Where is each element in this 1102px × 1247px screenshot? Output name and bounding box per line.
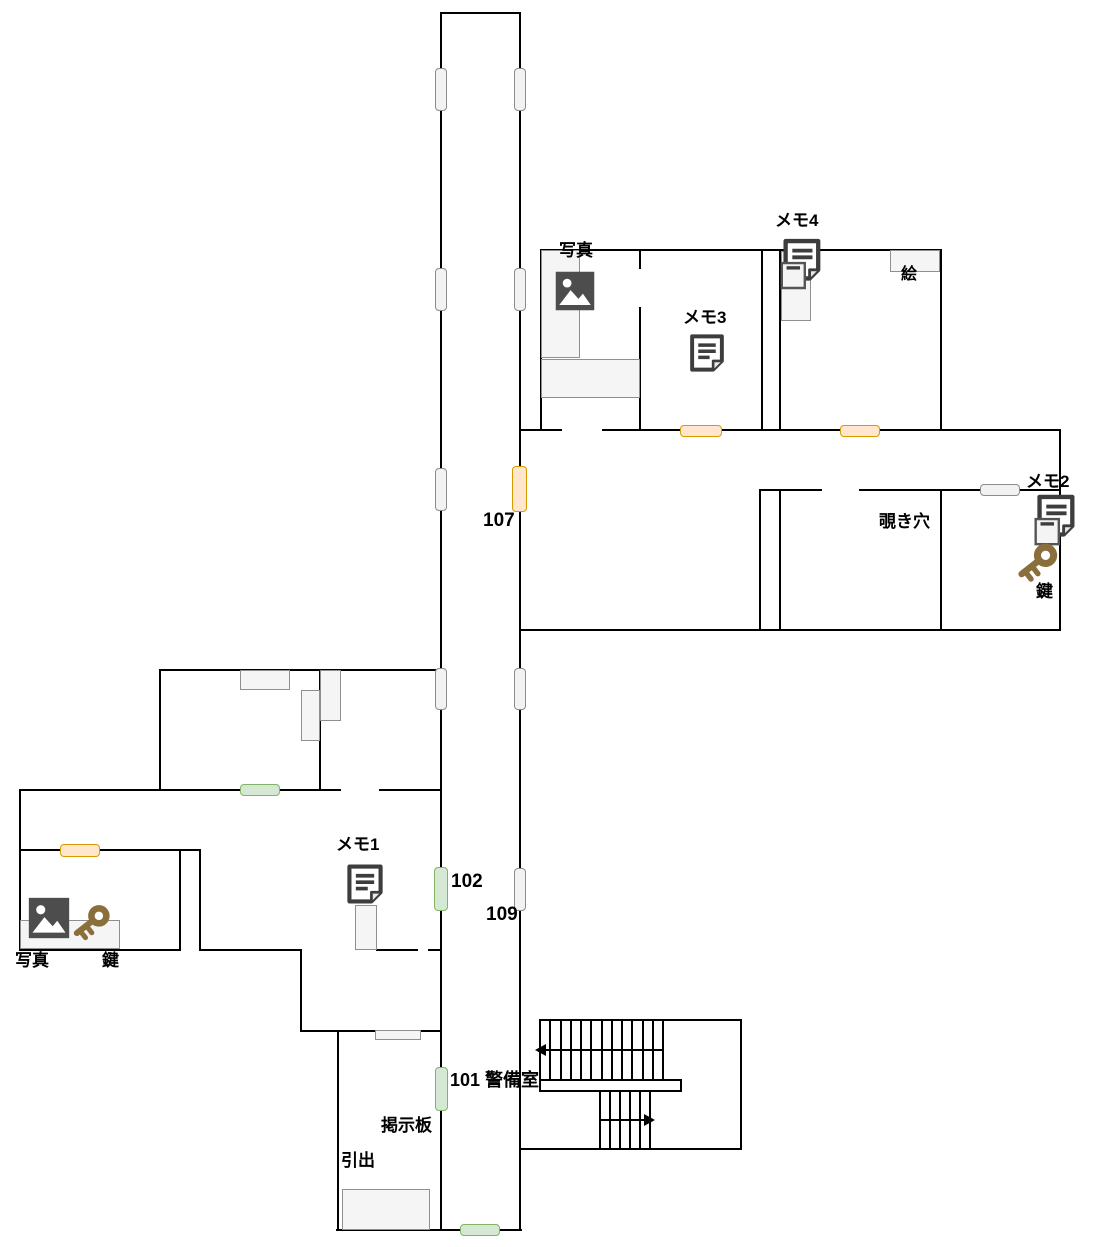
wall (759, 489, 822, 491)
peephole-label: 覗き穴 (879, 513, 930, 532)
wall (639, 249, 641, 269)
key-label-left: 鍵 (102, 952, 119, 971)
door-corridor-west-1 (435, 68, 447, 111)
door-corridor-west-2 (435, 268, 447, 311)
key-icon-left (66, 898, 116, 946)
wall (159, 669, 161, 791)
bulletin-board-label: 掲示板 (381, 1117, 432, 1136)
memo2-label: メモ2 (1026, 473, 1069, 492)
wall (519, 429, 562, 431)
door-corridor-east-4 (514, 668, 526, 710)
room-102-label: 102 (451, 872, 483, 893)
stair-arrow (600, 1119, 644, 1121)
furniture (355, 905, 377, 950)
wall (740, 1019, 742, 1150)
wall (337, 1030, 339, 1231)
door-north-room-2 (840, 425, 880, 437)
wall (759, 489, 761, 631)
wall (761, 249, 763, 431)
door-corridor-west-4 (435, 668, 447, 710)
furniture (320, 670, 341, 721)
door-corridor-west-3 (435, 468, 447, 511)
wall (940, 489, 942, 631)
stair-arrow-head-left (535, 1044, 546, 1056)
picture-label: 絵 (901, 266, 917, 284)
photo-label-top: 写真 (559, 242, 593, 261)
door-west-room (240, 784, 280, 796)
memo1-label: メモ1 (336, 836, 379, 855)
floor-plan: 写真メモ3メモ4絵メモ2覗き穴鍵107メモ1102109写真鍵101 警備室掲示… (0, 0, 1102, 1247)
door-north-room-1 (680, 425, 722, 437)
furniture (240, 670, 290, 690)
wall (376, 949, 418, 951)
photo-label-left: 写真 (15, 952, 49, 971)
door-southwest-room (60, 844, 100, 857)
door-101 (435, 1067, 448, 1111)
door-corridor-east-2 (514, 268, 526, 311)
room-107-label: 107 (483, 511, 515, 532)
wall (540, 249, 942, 251)
memo1-note-icon (343, 860, 387, 908)
door-107 (512, 466, 527, 512)
wall (428, 949, 442, 951)
furniture (541, 359, 640, 398)
memo3-label: メモ3 (683, 309, 726, 328)
memo4-label: メモ4 (775, 212, 818, 231)
wall (300, 949, 302, 1032)
wall (379, 789, 442, 791)
wall (779, 489, 781, 631)
stair-arrow-head-right (644, 1114, 655, 1126)
furniture (375, 1030, 421, 1040)
room-109-label: 109 (486, 905, 518, 926)
door-south-exit (460, 1224, 500, 1236)
wall (519, 629, 1061, 631)
door-memo2-room (980, 484, 1020, 496)
furniture (301, 690, 320, 741)
key-icon-right (1010, 536, 1064, 588)
memo4-note-icon (777, 236, 823, 294)
stair-landing (539, 1079, 682, 1092)
wall (440, 12, 521, 14)
wall (602, 429, 1061, 431)
stair-arrow (546, 1049, 663, 1051)
door-corridor-east-1 (514, 68, 526, 111)
wall (179, 849, 181, 951)
wall (199, 849, 201, 951)
furniture (342, 1189, 430, 1230)
wall (19, 849, 201, 851)
door-102 (434, 867, 448, 911)
wall (440, 12, 442, 1231)
wall (520, 1148, 742, 1150)
key-label-right: 鍵 (1036, 583, 1053, 602)
memo3-note-icon (686, 329, 728, 377)
drawer-label: 引出 (341, 1152, 375, 1171)
room-101-security-label: 101 警備室 (450, 1071, 539, 1091)
wall (940, 249, 942, 431)
wall (519, 12, 521, 1231)
wall (199, 949, 302, 951)
wall (19, 789, 341, 791)
wall (159, 669, 442, 671)
photo-image-icon-top (554, 270, 596, 312)
